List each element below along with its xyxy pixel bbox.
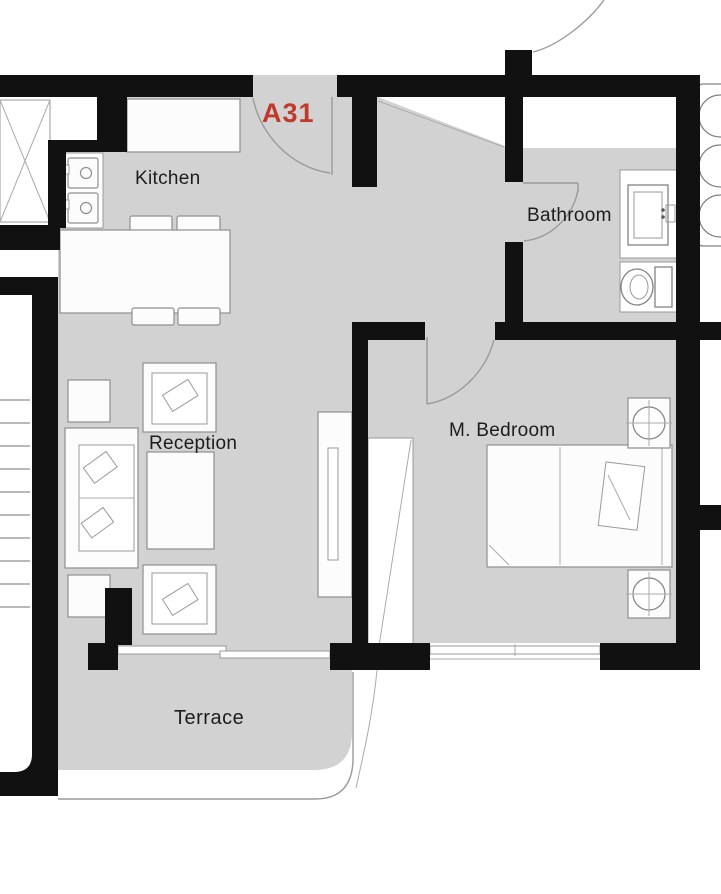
side-table-top: [68, 380, 110, 422]
reception-label: Reception: [149, 433, 237, 454]
unit-label: A31: [262, 98, 315, 128]
elevator-shaft: [0, 100, 50, 222]
hall-opening-floor: [352, 187, 368, 322]
entrance-threshold: [253, 75, 337, 97]
bedroom-bottom-wall: [600, 643, 700, 670]
top-wall-left: [0, 75, 253, 97]
side-table-bottom: [68, 575, 110, 617]
hall-west-wall: [352, 97, 377, 187]
toilet: [620, 262, 678, 312]
terrace-edge-curve: [356, 670, 377, 788]
armchair-bottom: [143, 565, 216, 634]
wardrobe: [368, 438, 413, 647]
dining-table: [60, 230, 230, 313]
chair: [178, 308, 220, 325]
east-wall: [676, 75, 700, 670]
kitchen-label: Kitchen: [135, 168, 200, 189]
nightstand-bottom: [626, 570, 672, 618]
armchair-top: [143, 363, 216, 432]
neighbor-wall-a: [0, 225, 60, 250]
faucet-icon: [661, 215, 665, 219]
kitchen-west-strip-wall: [48, 140, 66, 228]
west-wall: [0, 277, 58, 796]
master-bedroom-label: M. Bedroom: [449, 420, 555, 441]
top-wall-right: [337, 75, 700, 97]
bedroom-window: [425, 644, 605, 659]
entry-stub-wall: [505, 50, 532, 75]
floor-plan-page: A31 Kitchen Bathroom Reception M. Bedroo…: [0, 0, 721, 894]
stairs: [0, 400, 30, 607]
chair: [132, 308, 174, 325]
bathroom-west-wall-lower: [505, 242, 523, 340]
vanity-sink: [620, 170, 677, 258]
slider-right-jamb: [330, 643, 430, 670]
reception-bedroom-wall: [352, 322, 368, 660]
terrace-label: Terrace: [174, 707, 244, 729]
coffee-table: [147, 452, 214, 549]
bathroom-west-wall-upper: [505, 97, 523, 182]
neighbor-door-arc: [533, 0, 604, 52]
nightstand-top: [626, 398, 672, 448]
bathroom-door-threshold: [505, 182, 523, 242]
tv-console: [318, 412, 352, 597]
east-stub-wall: [697, 505, 721, 530]
double-bed: [487, 445, 672, 567]
bedroom-top-wall-right: [495, 322, 721, 340]
dining-table-set: [60, 216, 230, 325]
faucet-icon: [661, 208, 665, 212]
kitchen-counter: [127, 99, 240, 152]
bathroom-label: Bathroom: [527, 205, 612, 226]
reception-sw-pier: [105, 588, 132, 645]
stove: [60, 153, 103, 228]
slider-left-jamb: [88, 643, 118, 670]
neighbor-stove-circles: [697, 84, 721, 246]
bathroom-fixtures: [620, 170, 678, 312]
floor-plan-canvas: A31 Kitchen Bathroom Reception M. Bedroo…: [0, 0, 721, 894]
bedroom-door-threshold: [425, 322, 495, 340]
sofa: [65, 428, 138, 568]
bed-pillow: [598, 462, 645, 530]
